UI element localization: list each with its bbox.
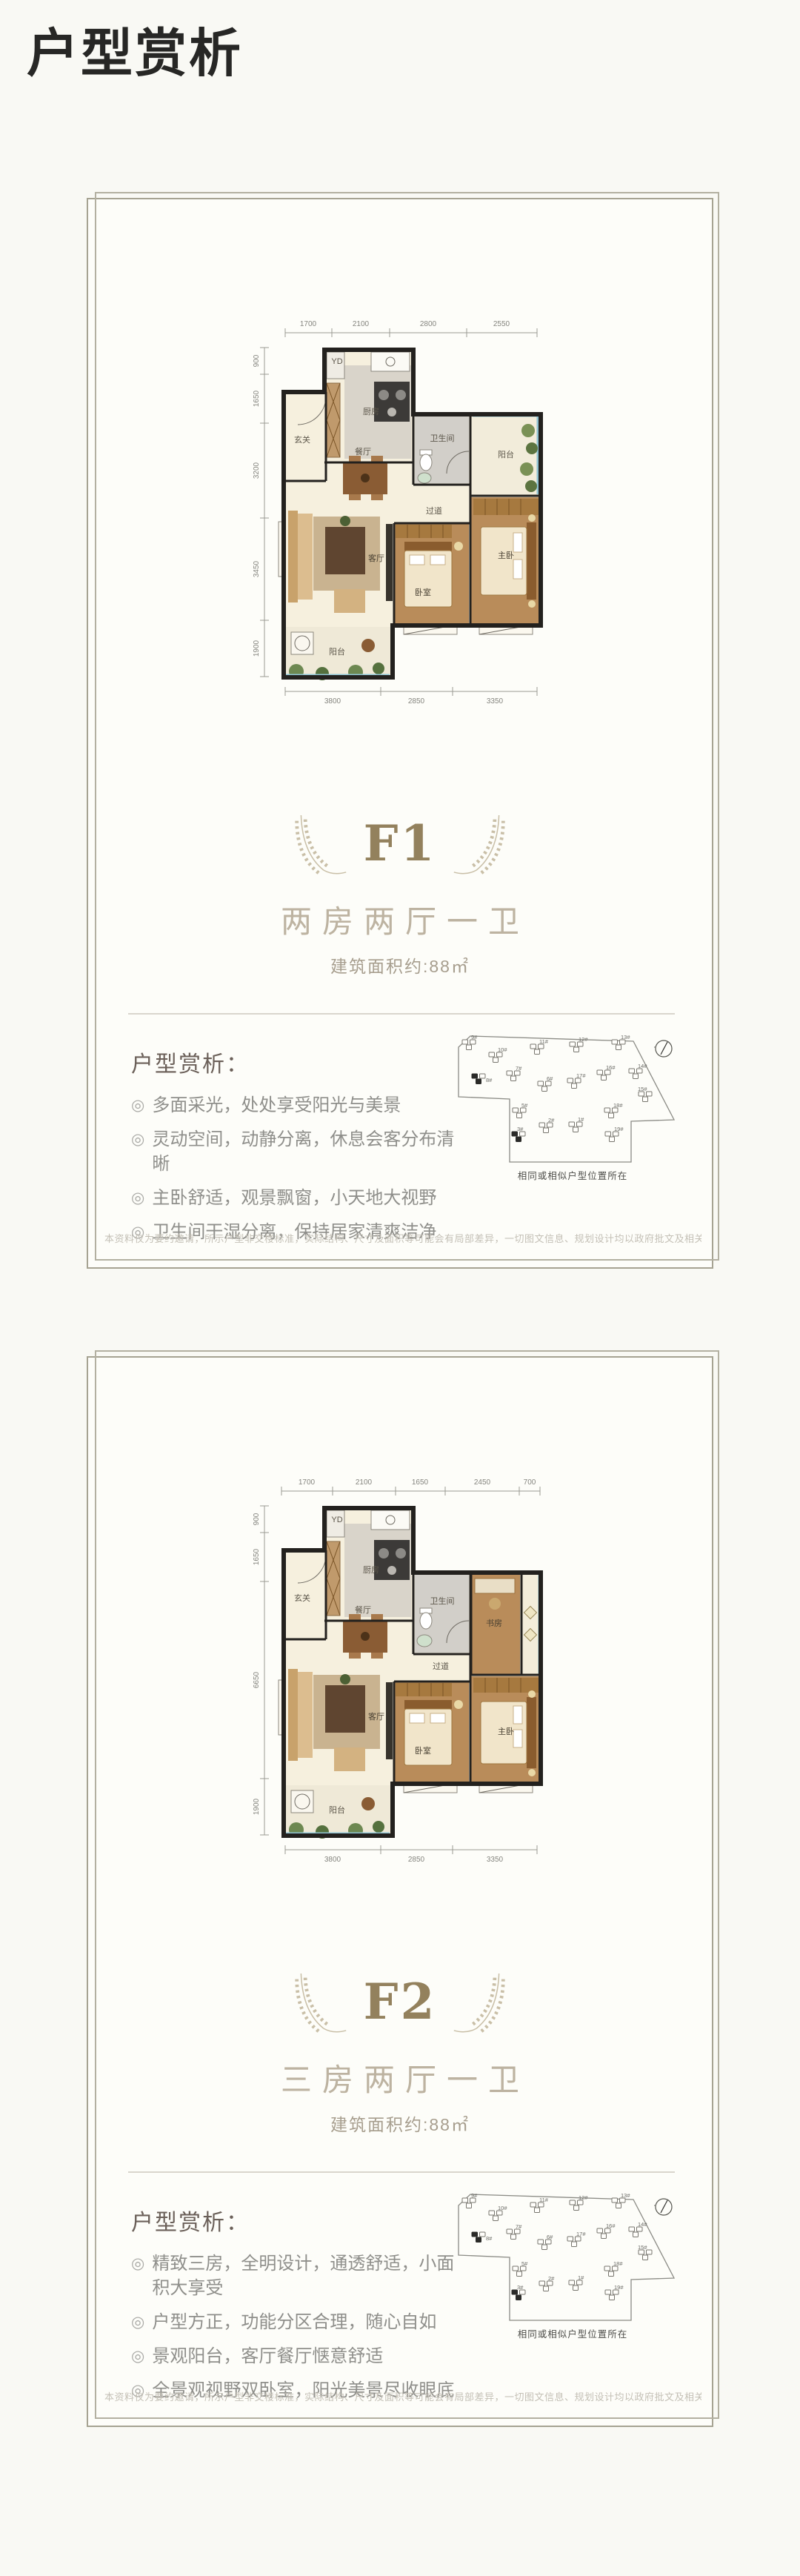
- room-label-entry: 玄关: [294, 1593, 310, 1603]
- svg-text:15#: 15#: [638, 2244, 647, 2251]
- room-label-bath: 卫生间: [430, 433, 455, 443]
- floorplan-f2-image: 1700 2100 1650 2450 700 900 1650 6650 19…: [226, 1461, 574, 1865]
- bullet-ring-icon: ◎: [131, 2344, 144, 2368]
- svg-text:900: 900: [253, 354, 261, 367]
- svg-text:10#: 10#: [498, 2205, 507, 2211]
- svg-text:6650: 6650: [253, 1671, 261, 1688]
- analysis-block: 户型赏析： ◎多面采光，处处享受阳光与美景 ◎灵动空间，动静分离，休息会客分布清…: [131, 1046, 456, 1244]
- svg-text:13#: 13#: [621, 2192, 630, 2199]
- disclaimer-text: 本资料仅为要约邀请，所示户型非交楼标准，实际结构、尺寸及面积等可能会有局部差异，…: [104, 1231, 701, 1245]
- compass-icon: [654, 1040, 672, 1057]
- compass-icon: [654, 2199, 672, 2215]
- analysis-heading: 户型赏析：: [131, 1046, 456, 1078]
- room-label-corridor: 过道: [426, 505, 442, 516]
- unit-name: F2: [359, 1973, 441, 2031]
- room-label-balcony-bottom: 阳台: [329, 1805, 345, 1815]
- page-title: 户型赏析: [27, 12, 800, 87]
- svg-text:1#: 1#: [578, 1116, 584, 1123]
- svg-text:3800: 3800: [324, 697, 341, 706]
- layout-name: 两房两厅一卫: [88, 897, 712, 942]
- svg-text:700: 700: [524, 1478, 536, 1487]
- svg-text:1650: 1650: [253, 390, 261, 407]
- unit-badge-f1: F1: [88, 808, 712, 879]
- svg-text:2450: 2450: [474, 1478, 491, 1487]
- room-label-balcony-right: 阳台: [498, 449, 514, 459]
- svg-text:17#: 17#: [576, 2231, 586, 2237]
- unit-card-f2: 1700 2100 1650 2450 700 900 1650 6650 19…: [87, 1356, 713, 2427]
- laurel-left-icon: [293, 808, 349, 879]
- analysis-block: 户型赏析： ◎精致三房，全明设计，通透舒适，小面积大享受 ◎户型方正，功能分区合…: [131, 2204, 456, 2403]
- svg-text:19#: 19#: [614, 1126, 624, 1132]
- siteplan-caption: 相同或相似户型位置所在: [517, 2328, 627, 2340]
- svg-text:1650: 1650: [253, 1548, 261, 1565]
- svg-text:5#: 5#: [521, 2260, 528, 2267]
- room-label-bedroom: 卧室: [415, 587, 431, 597]
- room-label-bedroom: 卧室: [415, 1745, 431, 1756]
- svg-text:3450: 3450: [253, 560, 261, 577]
- svg-text:2#: 2#: [548, 2275, 555, 2282]
- siteplan-map: 9# 10# 11# 12# 13# 7# 8# 6# 17# 16# 14# …: [456, 1032, 687, 1185]
- room-label-laundry: YD: [331, 1516, 342, 1524]
- svg-text:2100: 2100: [353, 320, 370, 328]
- unit-name: F1: [359, 814, 441, 872]
- svg-text:1700: 1700: [300, 320, 317, 328]
- analysis-heading: 户型赏析：: [131, 2204, 456, 2237]
- svg-text:13#: 13#: [621, 1034, 630, 1040]
- svg-text:18#: 18#: [613, 1102, 623, 1109]
- svg-text:9#: 9#: [471, 2192, 478, 2199]
- analysis-bullet: ◎多面采光，处处享受阳光与美景: [131, 1093, 456, 1118]
- svg-text:15#: 15#: [638, 1086, 647, 1092]
- svg-text:1650: 1650: [412, 1478, 429, 1487]
- room-label-dining: 餐厅: [355, 1604, 371, 1615]
- room-label-living: 客厅: [368, 553, 384, 563]
- analysis-bullet: ◎灵动空间，动静分离，休息会客分布清晰: [131, 1127, 456, 1176]
- bullet-ring-icon: ◎: [131, 1186, 144, 1210]
- svg-text:2800: 2800: [420, 320, 437, 328]
- analysis-bullet: ◎户型方正，功能分区合理，随心自如: [131, 2310, 456, 2334]
- room-label-bath: 卫生间: [430, 1596, 455, 1606]
- svg-text:1#: 1#: [578, 2274, 584, 2281]
- svg-text:1700: 1700: [299, 1478, 316, 1487]
- svg-text:1900: 1900: [253, 640, 261, 657]
- svg-text:2550: 2550: [493, 320, 510, 328]
- room-label-laundry: YD: [331, 357, 342, 366]
- svg-text:3#: 3#: [517, 2284, 524, 2291]
- svg-text:7#: 7#: [516, 2223, 522, 2230]
- room-label-corridor: 过道: [433, 1661, 449, 1671]
- unit-badge-f2: F2: [88, 1966, 712, 2037]
- svg-text:14#: 14#: [638, 1063, 647, 1069]
- room-label-master: 主卧: [498, 551, 514, 560]
- layout-name: 三房两厅一卫: [88, 2055, 712, 2100]
- svg-text:10#: 10#: [498, 1046, 507, 1053]
- svg-text:18#: 18#: [613, 2260, 623, 2267]
- svg-text:16#: 16#: [606, 2223, 616, 2229]
- area-label: 建筑面积约:88㎡: [88, 2111, 712, 2136]
- room-label-study: 书房: [486, 1619, 502, 1628]
- siteplan-map: 9# 10# 11# 12# 13# 7# 8# 6# 17# 16# 14# …: [456, 2191, 687, 2343]
- svg-text:7#: 7#: [516, 1065, 522, 1072]
- room-label-entry: 玄关: [294, 434, 310, 445]
- svg-text:11#: 11#: [539, 1038, 549, 1045]
- svg-text:6#: 6#: [547, 2234, 553, 2240]
- room-label-living: 客厅: [368, 1711, 384, 1722]
- disclaimer-text: 本资料仅为要约邀请，所示户型非交楼标准，实际结构、尺寸及面积等可能会有局部差异，…: [104, 2389, 701, 2403]
- laurel-right-icon: [451, 808, 507, 879]
- bullet-ring-icon: ◎: [131, 2251, 144, 2300]
- room-label-balcony-bottom: 阳台: [329, 646, 345, 657]
- svg-text:3350: 3350: [487, 697, 504, 706]
- bullet-ring-icon: ◎: [131, 1127, 144, 1176]
- area-label: 建筑面积约:88㎡: [88, 952, 712, 977]
- room-label-kitchen: 厨房: [363, 407, 379, 416]
- svg-text:2#: 2#: [548, 1117, 555, 1123]
- svg-text:6#: 6#: [547, 1075, 553, 1082]
- svg-text:2850: 2850: [408, 697, 425, 706]
- svg-text:14#: 14#: [638, 2221, 647, 2228]
- svg-text:9#: 9#: [471, 1034, 478, 1040]
- analysis-bullet: ◎景观阳台，客厅餐厅惬意舒适: [131, 2344, 456, 2368]
- laurel-right-icon: [451, 1966, 507, 2037]
- siteplan-block: 9# 10# 11# 12# 13# 7# 8# 6# 17# 16# 14# …: [456, 1032, 690, 1244]
- svg-text:12#: 12#: [579, 2194, 588, 2201]
- bullet-ring-icon: ◎: [131, 1093, 144, 1118]
- room-label-dining: 餐厅: [355, 446, 371, 457]
- svg-text:8#: 8#: [486, 1077, 493, 1083]
- svg-text:17#: 17#: [576, 1072, 586, 1079]
- svg-text:2850: 2850: [408, 1856, 425, 1864]
- svg-text:19#: 19#: [614, 2284, 624, 2291]
- svg-text:3200: 3200: [253, 462, 261, 479]
- laurel-left-icon: [293, 1966, 349, 2037]
- floorplan-f1-image: 1700 2100 2800 2550 900 1650 3200 3450 1…: [226, 303, 574, 707]
- svg-text:12#: 12#: [579, 1036, 588, 1043]
- room-label-kitchen: 厨房: [363, 1565, 379, 1575]
- unit-card-f1: 1700 2100 2800 2550 900 1650 3200 3450 1…: [87, 198, 713, 1269]
- svg-text:3#: 3#: [517, 1126, 524, 1132]
- svg-text:1900: 1900: [253, 1798, 261, 1815]
- analysis-bullet: ◎主卧舒适，观景飘窗，小天地大视野: [131, 1186, 456, 1210]
- bullet-ring-icon: ◎: [131, 2310, 144, 2334]
- svg-text:16#: 16#: [606, 1064, 616, 1071]
- room-label-master: 主卧: [498, 1727, 514, 1736]
- svg-text:8#: 8#: [486, 2235, 493, 2242]
- svg-text:3350: 3350: [487, 1856, 504, 1864]
- svg-text:3800: 3800: [324, 1856, 341, 1864]
- siteplan-block: 9# 10# 11# 12# 13# 7# 8# 6# 17# 16# 14# …: [456, 2191, 690, 2403]
- siteplan-caption: 相同或相似户型位置所在: [517, 1170, 627, 1181]
- svg-text:11#: 11#: [539, 2197, 549, 2203]
- svg-text:5#: 5#: [521, 1102, 528, 1109]
- analysis-bullet: ◎精致三房，全明设计，通透舒适，小面积大享受: [131, 2251, 456, 2300]
- svg-text:2100: 2100: [356, 1478, 373, 1487]
- svg-text:900: 900: [253, 1513, 261, 1525]
